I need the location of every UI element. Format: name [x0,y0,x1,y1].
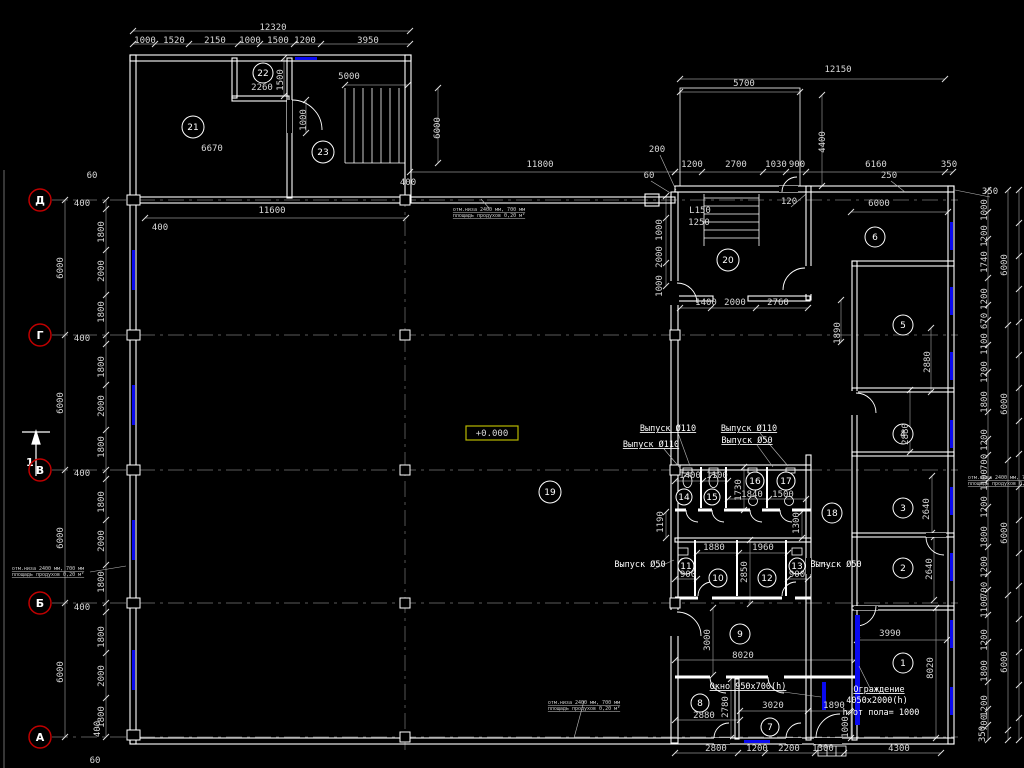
callout-label: Выпуск Ø50 [721,435,772,446]
dimension-label: 1880 [703,543,725,553]
room-number: 9 [737,630,743,640]
dimension-label: 1800 [97,301,107,323]
dimension-label: 900 [789,570,805,580]
room-number: 10 [712,574,724,584]
callout-label: Выпуск Ø110 [721,423,777,434]
cad-canvas: +0.000 1 ДГВБА 2122232065432119181415161… [0,0,1024,768]
dimension-label: 1300 [812,744,834,754]
dimension-label: 400 [93,721,103,737]
room-number: 17 [780,477,791,487]
dimension-label: 120 [781,197,797,207]
dimension-label: 1200 [980,225,990,247]
dimension-label: 1200 [980,629,990,651]
window-icon [132,520,135,560]
dimension-label: 11800 [526,160,553,170]
dimension-label: 12150 [824,65,851,75]
dimension-label: 250 [881,171,897,181]
window-icon [950,287,953,315]
dimension-label: 3020 [762,701,784,711]
callout-label: Окно 950x700(h) [710,682,787,692]
dimension-label: 6000 [433,117,443,139]
axis-label: Г [36,329,43,342]
callout-label: Выпуск Ø50 [614,559,665,570]
dimension-label: 1890 [823,701,845,711]
dimension-label: 1800 [97,436,107,458]
dimension-label: 1200 [980,361,990,383]
dimension-label: 6670 [201,144,223,154]
dimension-label: 1740 [980,251,990,273]
tiny-note-line2: площадь продухов 0,20 м² [548,706,620,712]
room-number: 12 [761,574,772,584]
dimension-label: 6000 [56,392,66,414]
dimension-label: L150 [689,206,711,216]
dimension-label: 1200 [980,496,990,518]
dimension-label: 2880 [901,423,911,445]
window-icon [950,222,953,250]
dimension-label: 1000 [980,199,990,221]
level-mark-value: +0.000 [476,429,509,439]
dimension-label: 400 [152,223,168,233]
dimension-label: 2000 [97,260,107,282]
dimension-label: 1800 [97,491,107,513]
dimension-label: 1000 [239,36,261,46]
dimension-label: 1200 [980,556,990,578]
dimension-label: 11600 [258,206,285,216]
room-number: 3 [900,504,906,514]
callout-label: Выпуск Ø110 [623,439,679,450]
dimension-label: 6000 [56,527,66,549]
dimension-label: 1100 [980,596,990,618]
window-icon [132,650,135,690]
window-icon [295,57,317,60]
dimension-label: 6000 [56,257,66,279]
dimension-label: 3990 [879,629,901,639]
dimension-label: 6000 [1000,393,1010,415]
dimension-label: 1100 [980,333,990,355]
axis-label: Б [36,597,44,610]
dimension-label: 200 [649,145,665,155]
room-number: 19 [544,488,556,498]
dimension-label: 1500 [276,69,286,91]
dimension-label: 350 [941,160,957,170]
drawing-background [0,0,1024,768]
dimension-label: 400 [74,603,90,613]
dimension-label: 400 [74,334,90,344]
room-number: 6 [872,233,878,243]
dimension-label: 2000 [97,665,107,687]
dimension-label: 1250 [688,218,710,228]
dimension-label: 2000 [97,530,107,552]
floor-plan-svg: +0.000 1 ДГВБА 2122232065432119181415161… [0,0,1024,768]
dimension-label: 1800 [980,660,990,682]
window-icon [950,487,953,515]
axis-label: А [36,731,45,744]
dimension-label: 60 [87,171,98,181]
dimension-label: 3950 [357,36,379,46]
window-icon [744,740,770,743]
room-number: 16 [749,477,761,487]
dimension-label: 8020 [926,657,936,679]
room-number: 2 [900,564,906,574]
dimension-label: 350 [978,726,988,742]
dimension-label: 2850 [740,561,750,583]
dimension-label: 700 [980,454,990,470]
dimension-label: 1200 [980,429,990,451]
dimension-label: 60 [644,171,655,181]
dimension-label: 1200 [980,288,990,310]
room-number: 22 [257,69,268,79]
dimension-label: 4300 [888,744,910,754]
dimension-label: 1000 [655,275,665,297]
window-icon [950,352,953,380]
dimension-label: 1200 [980,695,990,717]
dimension-label: 1000 [134,36,156,46]
dimension-label: 1520 [163,36,185,46]
dimension-label: 1800 [97,626,107,648]
dimension-label: 350 [982,187,998,197]
tiny-note-line2: площадь продухов 0,20 м² [453,213,525,219]
dimension-label: 2880 [923,351,933,373]
dimension-label: 1400 [695,298,717,308]
dimension-label: 2760 [767,298,789,308]
dimension-label: 1500 [267,36,289,46]
axis-label: Д [35,194,45,207]
dimension-label: 900 [789,160,805,170]
dimension-label: 1800 [97,221,107,243]
dimension-label: 3000 [703,629,713,651]
dimension-label: 1200 [746,744,768,754]
dimension-label: 2000 [655,246,665,268]
dimension-label: 1000 [841,716,851,738]
tiny-note-line2: площадь продухов 0,20 м² [968,481,1024,487]
room-number: 1 [900,659,906,669]
dimension-label: 2800 [705,744,727,754]
room-number: 8 [697,699,703,709]
dimension-label: 2640 [922,498,932,520]
dimension-label: 900 [680,570,696,580]
dimension-label: 2880 [693,711,715,721]
dimension-label: 400 [74,199,90,209]
callout-label: Выпуск Ø110 [640,423,696,434]
room-number: 7 [767,723,773,733]
dimension-label: 2200 [778,744,800,754]
dimension-label: 1100 [706,471,728,481]
dimension-label: 1200 [294,36,316,46]
dimension-label: 2700 [725,160,747,170]
dimension-label: 2640 [925,558,935,580]
callout-label: h от пола= 1000 [843,708,920,718]
dimension-label: 4400 [818,131,828,153]
dimension-label: 1800 [980,526,990,548]
axis-label: В [36,464,44,477]
dimension-label: 670 [980,313,990,329]
tiny-note-line2: площадь продухов 0,20 м² [12,572,84,578]
room-number: 20 [722,256,734,266]
dimension-label: 1190 [656,511,666,533]
dimension-label: 6160 [865,160,887,170]
dimension-label: 1890 [833,322,843,344]
room-number: 5 [900,321,906,331]
dimension-label: 12320 [259,23,286,33]
dimension-label: 2780 [721,696,731,718]
callout-label: Выпуск Ø50 [810,559,861,570]
dimension-label: 700 [980,582,990,598]
window-icon [132,385,135,425]
window-icon [950,553,953,581]
callout-label: 4050x2000(h) [846,696,907,706]
room-number: 18 [826,509,838,519]
window-icon [950,420,953,448]
dimension-label: 1000 [655,219,665,241]
dimension-label: 2000 [724,298,746,308]
dimension-label: 2260 [251,83,273,93]
dimension-label: 8020 [732,651,754,661]
room-number: 15 [706,493,717,503]
room-number: 14 [678,493,690,503]
dimension-label: 1400 [679,471,701,481]
dimension-label: 2150 [204,36,226,46]
dimension-label: 5000 [338,72,360,82]
dimension-label: 5700 [733,79,755,89]
dimension-label: 1960 [752,543,774,553]
dimension-label: 1300 [792,512,802,534]
dimension-label: 1200 [681,160,703,170]
dimension-label: 60 [90,756,101,766]
dimension-label: 6000 [56,661,66,683]
dimension-label: 6000 [1000,522,1010,544]
dimension-label: 400 [74,469,90,479]
callout-label: Ограждение [853,685,904,695]
dimension-label: 1800 [97,356,107,378]
dimension-label: 6000 [1000,254,1010,276]
dimension-label: 2000 [97,395,107,417]
dimension-label: 1800 [97,571,107,593]
room-number: 21 [187,123,198,133]
dimension-label: 400 [400,178,416,188]
dimension-label: 1500 [772,490,794,500]
window-icon [950,687,953,715]
window-icon [132,250,135,290]
window-icon [950,620,953,648]
room-number: 23 [317,148,328,158]
dimension-label: 1000 [299,109,309,131]
dimension-label: 1800 [980,391,990,413]
dimension-label: 1840 [741,490,763,500]
dimension-label: 1030 [765,160,787,170]
dimension-label: 6000 [868,199,890,209]
dimension-label: 6000 [1000,651,1010,673]
